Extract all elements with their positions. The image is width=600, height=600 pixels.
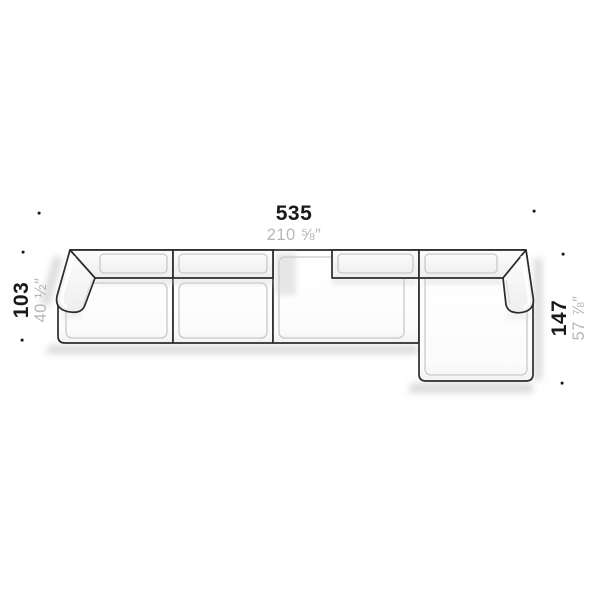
shadow-under-chaise xyxy=(408,383,533,393)
dimension-left-cm: 103 xyxy=(10,282,33,319)
shadow-right-edge xyxy=(534,258,542,380)
sofa-dimension-diagram: 535 210 ⅝″ 103 40 ½″ 147 57 ⅞″ xyxy=(0,0,600,600)
dimension-right-cm: 147 xyxy=(548,300,571,337)
dimension-dot-top-left xyxy=(38,212,41,215)
shadow-under-seat xyxy=(45,345,418,354)
dimension-top-cm: 535 xyxy=(276,202,313,225)
dimension-dot-right-top xyxy=(562,253,565,256)
diagram-canvas: 535 210 ⅝″ 103 40 ½″ 147 57 ⅞″ xyxy=(0,0,600,600)
dimension-right-inches: 57 ⅞″ xyxy=(570,295,588,340)
dimension-dot-left-top xyxy=(22,251,25,254)
dimension-left-inches: 40 ½″ xyxy=(32,277,50,322)
dimension-top-inches: 210 ⅝″ xyxy=(267,226,322,244)
dimension-dot-left-bottom xyxy=(21,339,24,342)
dimension-dot-right-bottom xyxy=(561,382,564,385)
dimension-dot-top-right xyxy=(533,210,536,213)
